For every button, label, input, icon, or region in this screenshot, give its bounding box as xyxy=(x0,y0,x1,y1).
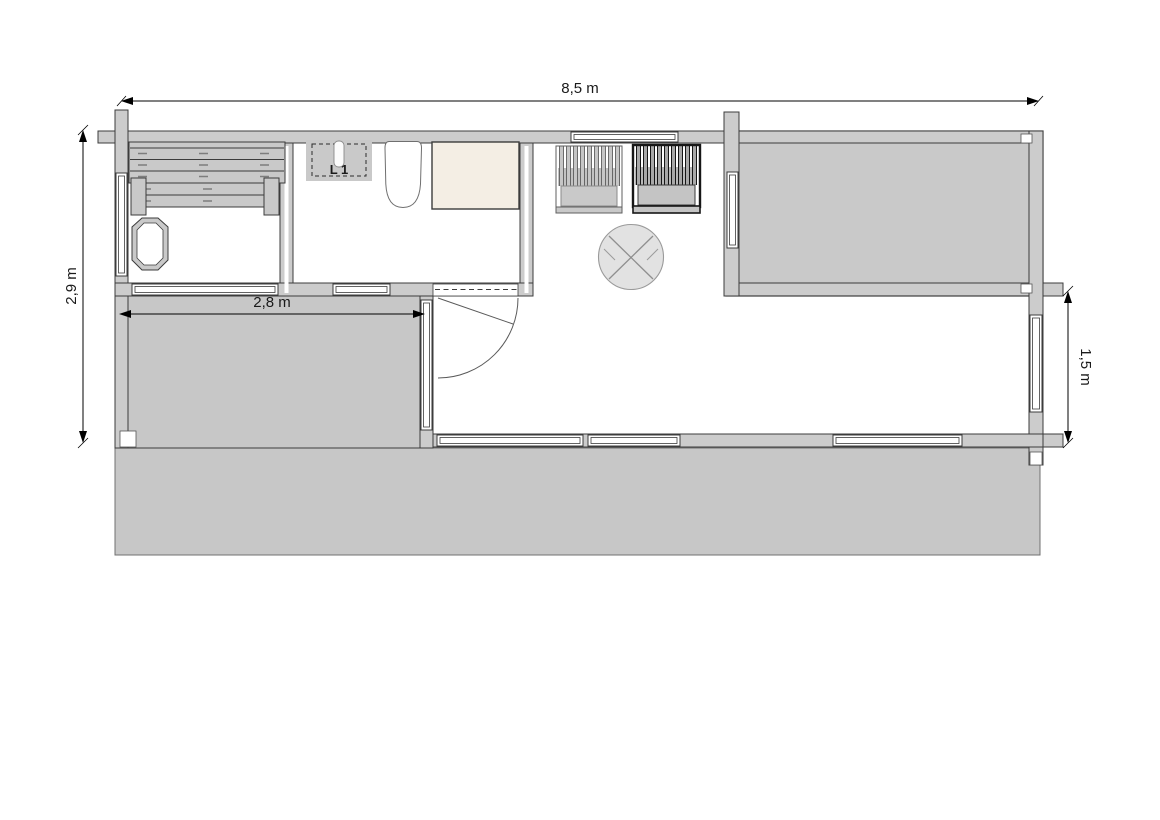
bench-upper xyxy=(129,142,285,183)
floor-plan-page: L 1 8,5 m xyxy=(0,0,1160,820)
floor-plan-canvas: L 1 8,5 m xyxy=(0,0,1160,820)
dim-label-overall-width: 8,5 m xyxy=(561,80,599,97)
window xyxy=(571,132,678,142)
shower-tray xyxy=(432,142,519,209)
sauna-heater-icon xyxy=(132,218,168,270)
fixture-label: L 1 xyxy=(330,162,349,177)
wall-right xyxy=(1029,131,1043,465)
chair-icon xyxy=(556,146,622,213)
window xyxy=(727,172,738,248)
window xyxy=(421,300,432,430)
window xyxy=(833,435,962,446)
wall-stub-lower xyxy=(1043,434,1063,447)
window xyxy=(116,173,127,276)
side-room xyxy=(726,131,1043,296)
washbasin-icon xyxy=(385,142,422,208)
chair-icon xyxy=(633,145,700,213)
side-terrace xyxy=(115,296,433,448)
light-fixture-l1: L 1 xyxy=(306,140,372,181)
dim-label-terrace-width: 2,8 m xyxy=(253,294,291,311)
front-terrace xyxy=(115,448,1040,555)
round-table-icon xyxy=(599,225,664,290)
window xyxy=(437,435,583,446)
window xyxy=(588,435,680,446)
dim-label-overall-depth: 2,9 m xyxy=(63,267,80,305)
wall-left xyxy=(115,110,128,448)
window xyxy=(1030,315,1042,412)
window xyxy=(333,284,390,295)
wall-stub-upper xyxy=(1043,283,1063,296)
dim-label-side-depth: 1,5 m xyxy=(1077,348,1094,386)
